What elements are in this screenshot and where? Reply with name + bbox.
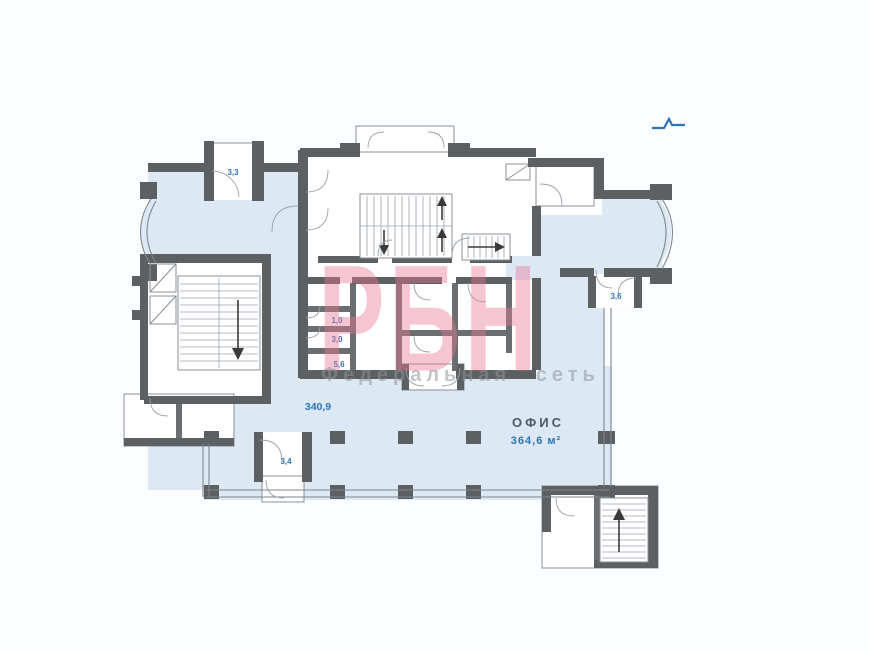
room-area-hall-small: 5,6	[333, 360, 345, 369]
staircase-central	[360, 194, 452, 258]
room-area-vestibule-right: 3,6	[610, 292, 622, 301]
north-icon	[652, 119, 685, 128]
office-title: ОФИС	[512, 415, 564, 430]
room-area-balcony: 3,3	[227, 168, 239, 177]
zone-area-label: 340,9	[305, 401, 331, 413]
room-area-entrance: 3,4	[280, 457, 292, 466]
office-area-value: 364,6 м²	[511, 435, 561, 447]
staircase-exterior	[600, 498, 648, 562]
right-vestibule-room	[588, 274, 642, 308]
room-area-wc-small: 1,0	[331, 316, 343, 325]
floorplan-page: 3,3 3,6 1,0 3,0 5,6 340,9 3,4 ОФИС 364,6…	[0, 0, 870, 652]
floor-plan: 3,3 3,6 1,0 3,0 5,6 340,9 3,4 ОФИС 364,6…	[0, 0, 870, 652]
top-protrusion-room	[356, 126, 454, 152]
room-area-wc: 3,0	[331, 335, 343, 344]
left-bay-corner-top	[140, 182, 157, 199]
right-bay-corner-top	[650, 184, 672, 200]
left-bay-corner-bottom	[140, 264, 157, 281]
